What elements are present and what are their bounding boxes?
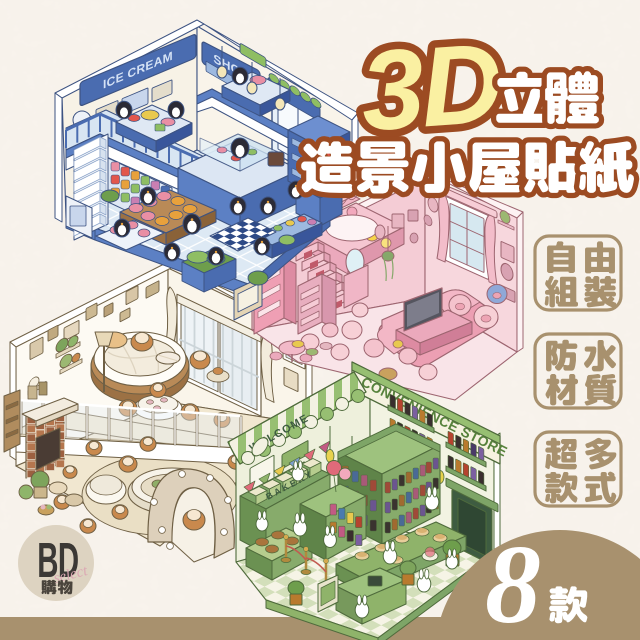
svg-text:8: 8 [485,523,541,640]
svg-text:3D: 3D [357,19,504,154]
